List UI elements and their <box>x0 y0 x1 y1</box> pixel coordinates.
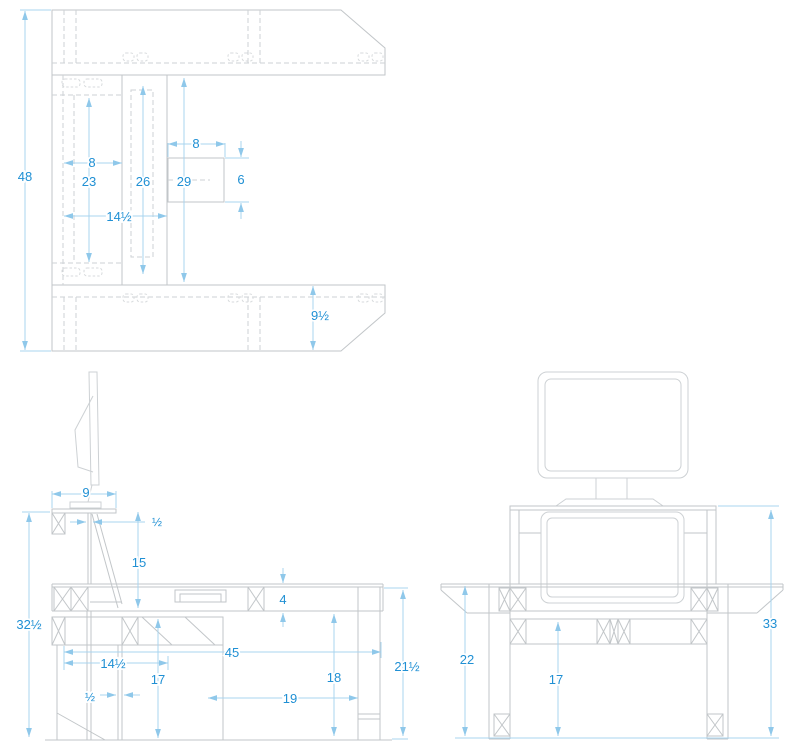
lower-frame-side <box>52 617 223 645</box>
dim-stretcher-height-front: 17 <box>549 672 563 687</box>
tray-side <box>175 590 226 602</box>
bottom-wing-outline <box>52 285 385 351</box>
dim-panel-thickness: ½ <box>85 690 95 704</box>
dim-apron-height: 4 <box>279 592 286 607</box>
side-view-dimension-lines <box>22 491 408 739</box>
dim-shelf-thickness: ½ <box>152 515 162 529</box>
dim-front-depth: 14½ <box>100 656 125 671</box>
dim-riser-height: 15 <box>132 555 146 570</box>
monitor-base <box>556 499 663 506</box>
monitor-screen <box>545 379 681 471</box>
technical-drawing-page: 48 8 8 23 26 29 6 14½ 9½ <box>0 0 798 750</box>
monitor-bezel <box>538 372 688 478</box>
dim-underside-clearance: 18 <box>327 670 341 685</box>
dim-inner-offset: 8 <box>88 155 95 170</box>
monitor-foot <box>70 502 101 508</box>
pocket-hole-markers <box>62 53 383 302</box>
desk-top-outline <box>52 10 385 351</box>
dim-center-depth: 14½ <box>106 209 131 224</box>
dim-desktop-clearance: 21½ <box>394 659 419 674</box>
desktop-side <box>52 584 383 611</box>
dim-shelf-top-height: 33 <box>763 616 777 631</box>
dim-shelf-depth: 9 <box>82 485 89 500</box>
top-wing-outline <box>52 10 385 75</box>
monitor-shelf-side <box>52 509 122 608</box>
dim-overall-width: 48 <box>18 169 32 184</box>
top-view: 48 8 8 23 26 29 6 14½ 9½ <box>18 10 385 351</box>
lower-screen-front <box>541 512 684 603</box>
dim-box-width: 8 <box>192 136 199 151</box>
dim-leg-spacing: 19 <box>283 691 297 706</box>
dim-panel-b: 26 <box>136 174 150 189</box>
dim-panel-c: 29 <box>177 174 191 189</box>
dim-box-depth: 6 <box>237 172 244 187</box>
front-view: 22 17 33 <box>441 372 783 739</box>
dim-overall-height: 32½ <box>16 617 41 632</box>
monitor-neck <box>596 478 627 499</box>
dim-stretcher-height-side: 17 <box>151 672 165 687</box>
stretcher-front <box>510 619 707 644</box>
dim-wing-height: 22 <box>460 652 474 667</box>
dim-panel-a: 23 <box>82 174 96 189</box>
desktop-front <box>441 584 783 613</box>
shelf-brace <box>92 514 118 608</box>
dim-overall-depth: 45 <box>225 645 239 660</box>
foot-brace <box>57 713 105 740</box>
legs-front <box>489 584 728 739</box>
technical-drawing-canvas: 48 8 8 23 26 29 6 14½ 9½ <box>0 0 798 750</box>
hidden-edges <box>52 10 385 351</box>
top-view-dimension-labels: 48 8 8 23 26 29 6 14½ 9½ <box>18 136 329 323</box>
side-view: 9 ½ 15 32½ 14½ 45 17 ½ 4 18 19 21½ <box>16 372 419 740</box>
monitor-front <box>538 372 688 506</box>
dim-wing-width: 9½ <box>311 308 329 323</box>
